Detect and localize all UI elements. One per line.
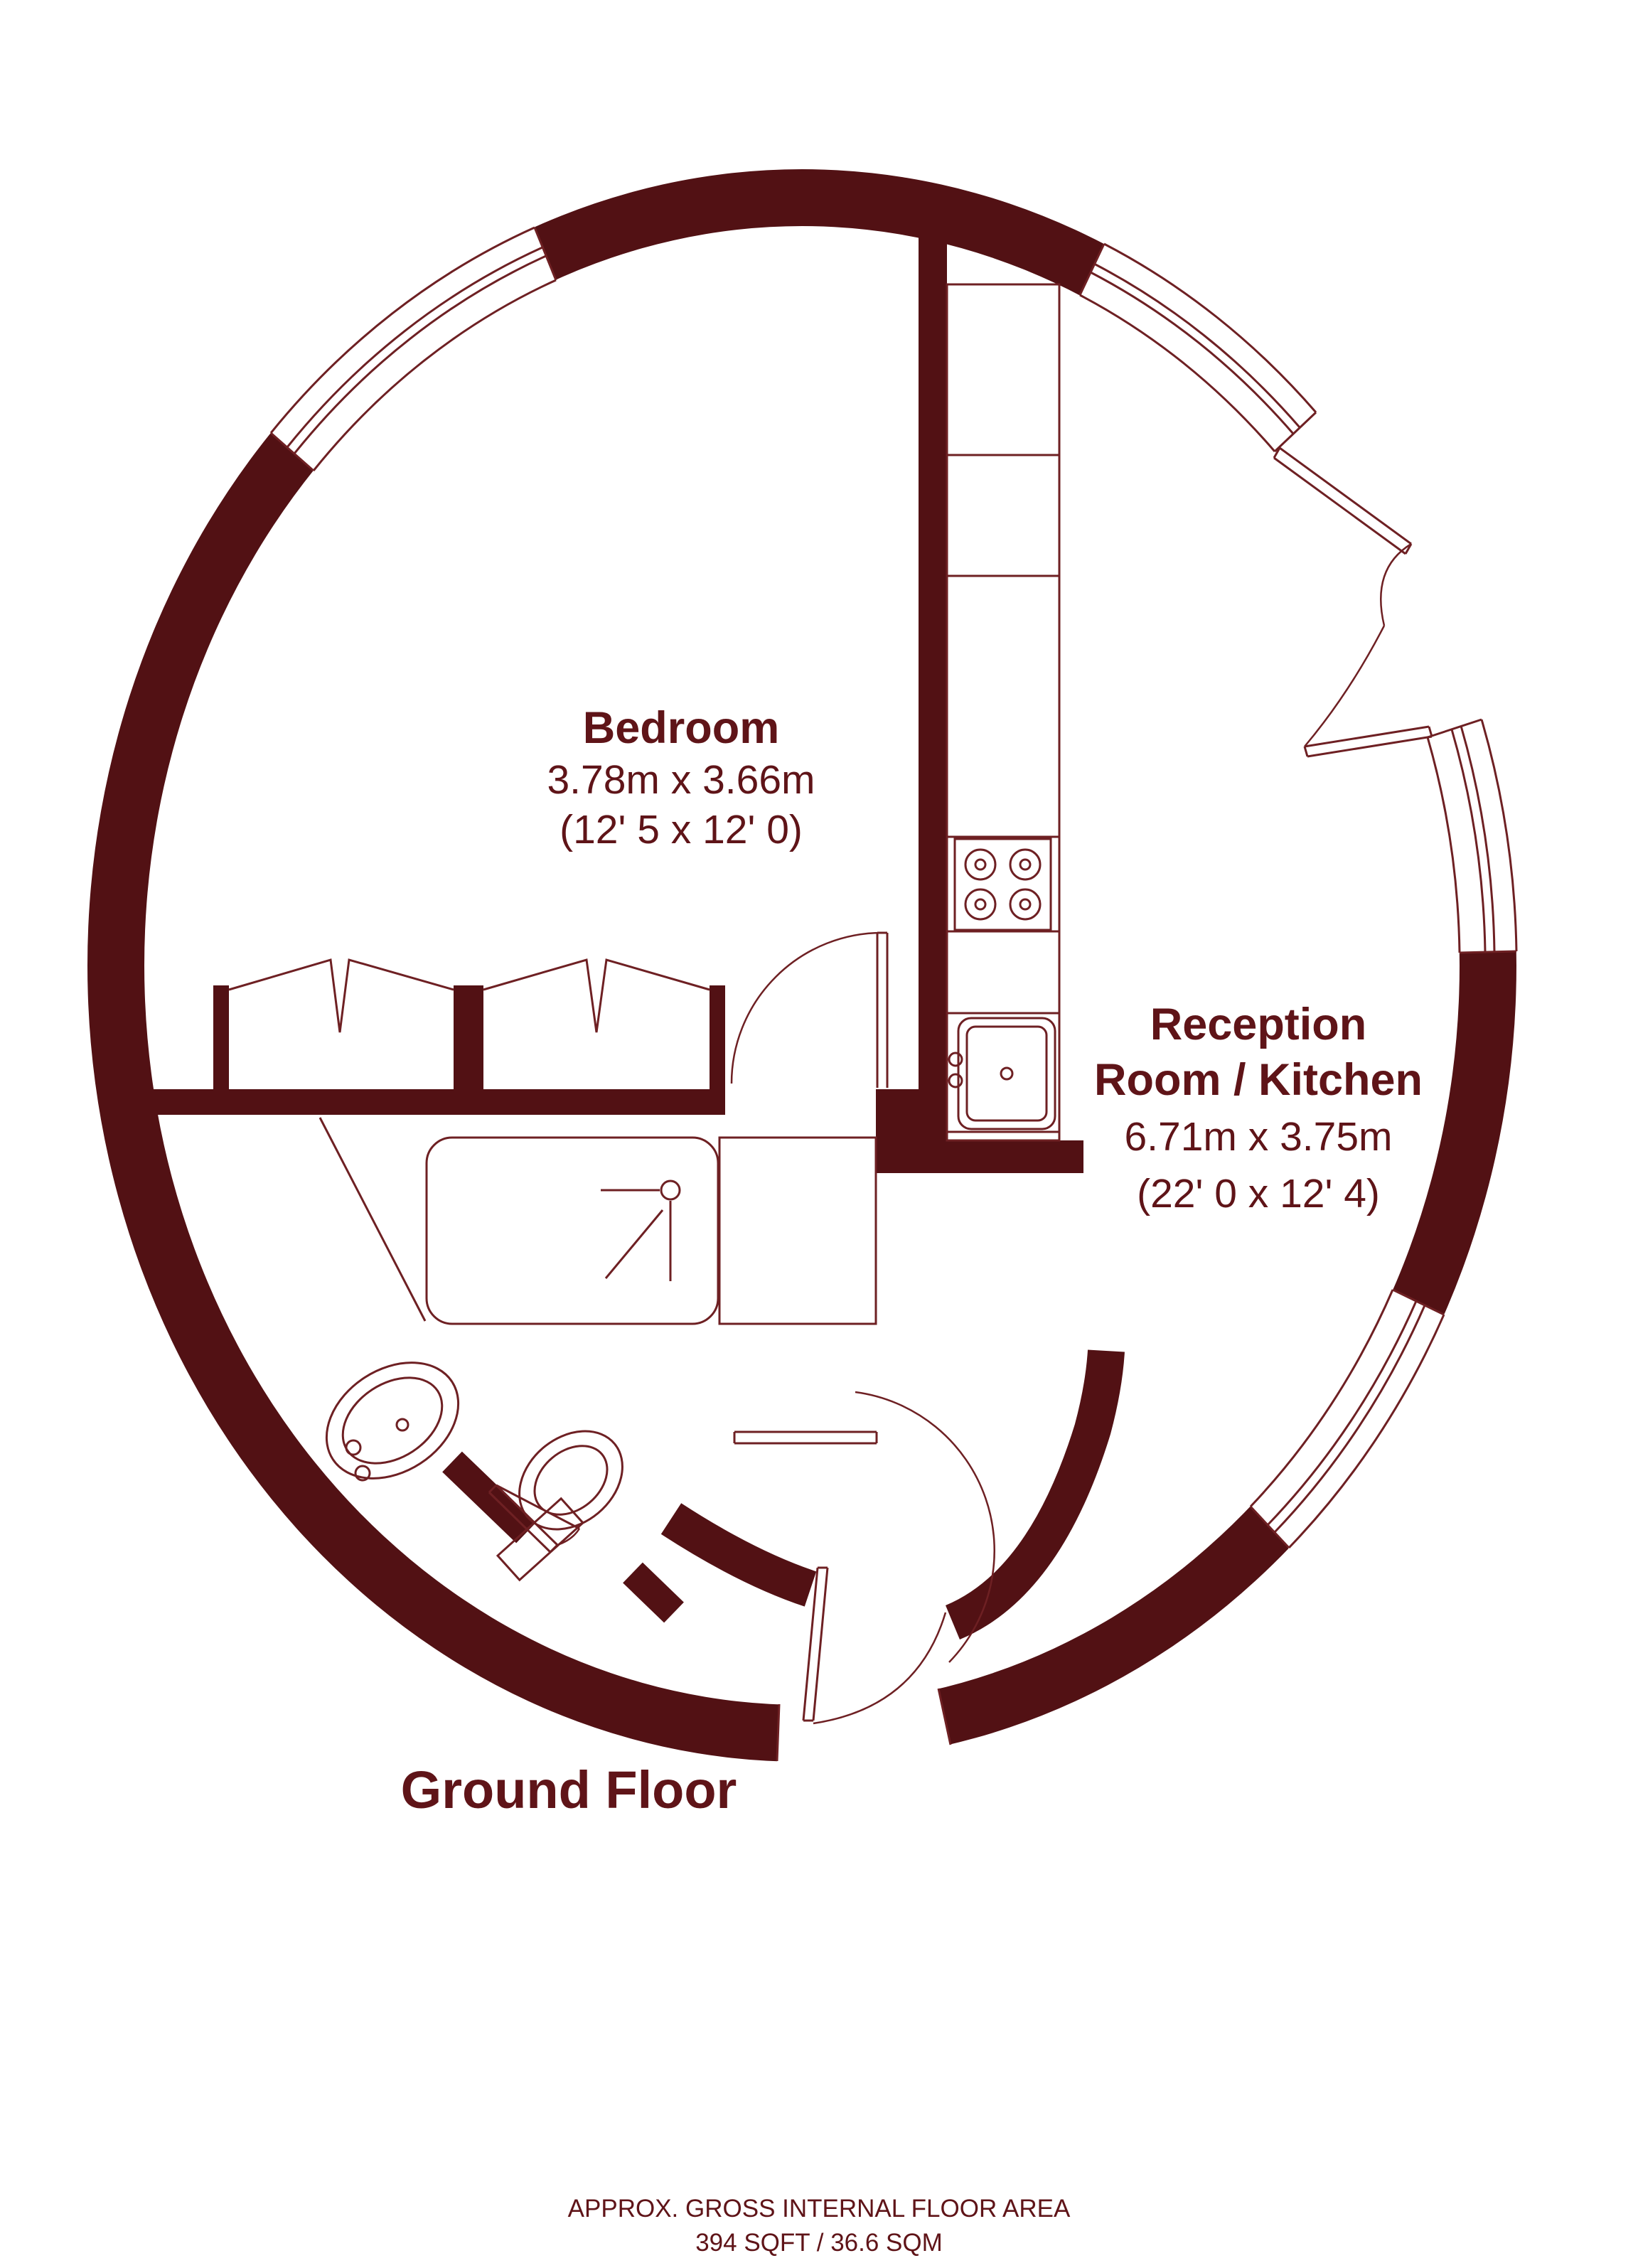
reception-dimensions-metric: 6.71m x 3.75m xyxy=(1124,1114,1392,1160)
balcony-door-gap xyxy=(1268,401,1495,740)
bedroom-door xyxy=(732,933,887,1088)
kitchen-wall-return xyxy=(919,1140,1083,1173)
toilet xyxy=(498,1411,642,1580)
wardrobe-icon xyxy=(229,960,454,1032)
bathroom-boundary-line xyxy=(320,1118,425,1321)
hall-wall-right xyxy=(953,1351,1106,1622)
hob-icon xyxy=(955,839,1051,930)
reception-label-line2: Room / Kitchen xyxy=(1094,1055,1423,1105)
entrance-gap xyxy=(776,1678,955,1785)
reception-dimensions-imperial: (22' 0 x 12' 4) xyxy=(1137,1171,1380,1216)
shower xyxy=(427,1138,718,1324)
bathroom-wall-stub xyxy=(633,1573,674,1612)
wardrobe-icon xyxy=(483,960,710,1032)
bedroom-wall xyxy=(146,1089,725,1115)
wall-openings xyxy=(260,213,1531,1785)
kitchen-counter xyxy=(947,284,1059,1140)
kitchen-wall xyxy=(919,228,947,1140)
bathroom xyxy=(305,1118,876,1580)
window-gap-top-left xyxy=(260,213,560,478)
hob xyxy=(955,839,1051,930)
sink-icon xyxy=(958,1018,1055,1129)
hall-wall-left xyxy=(671,1519,810,1589)
bathroom-wall xyxy=(452,1462,526,1533)
reception-label-line1: Reception xyxy=(1150,1000,1367,1049)
door-swing-icon xyxy=(1305,626,1384,747)
kitchen-wall-stub xyxy=(876,1089,919,1173)
floor-label: Ground Floor xyxy=(401,1760,737,1819)
bathroom-cabinet xyxy=(719,1138,876,1324)
kitchen-sink xyxy=(949,1018,1055,1129)
door-swing-icon xyxy=(732,933,882,1084)
footer-area-line2: 394 SQFT / 36.6 SQM xyxy=(695,2229,943,2257)
floorplan-page: Bedroom 3.78m x 3.66m (12' 5 x 12' 0) Re… xyxy=(0,0,1638,2268)
bedroom-label: Bedroom xyxy=(583,703,780,753)
bedroom-dimensions-metric: 3.78m x 3.66m xyxy=(547,757,815,803)
footer-area-line1: APPROX. GROSS INTERNAL FLOOR AREA xyxy=(568,2195,1071,2222)
shower-icon xyxy=(427,1138,718,1324)
floorplan-canvas: Bedroom 3.78m x 3.66m (12' 5 x 12' 0) Re… xyxy=(0,0,1638,2268)
bedroom-dimensions-imperial: (12' 5 x 12' 0) xyxy=(560,807,803,852)
